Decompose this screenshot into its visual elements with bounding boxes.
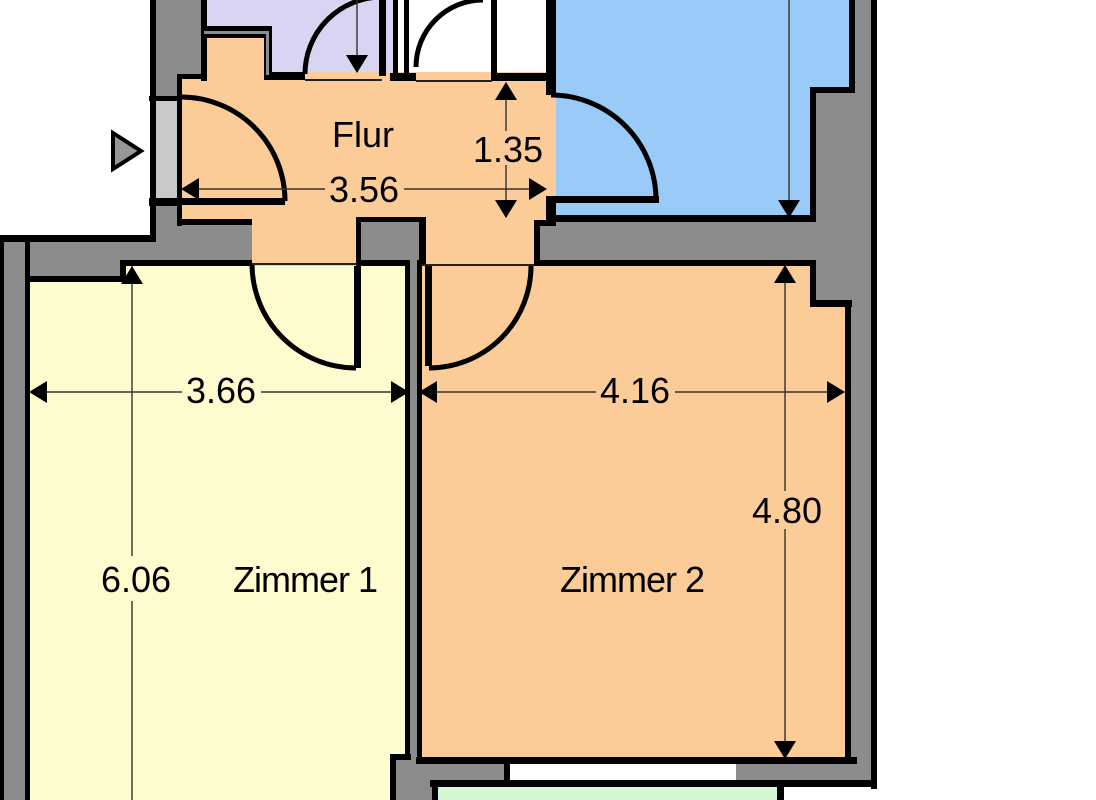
svg-text:3.66: 3.66	[186, 370, 256, 411]
svg-text:6.06: 6.06	[101, 559, 171, 600]
svg-text:1.35: 1.35	[473, 129, 543, 170]
svg-text:3.56: 3.56	[329, 169, 399, 210]
svg-text:Zimmer 2: Zimmer 2	[560, 559, 704, 600]
svg-text:4.80: 4.80	[752, 490, 822, 531]
svg-text:4.16: 4.16	[600, 370, 670, 411]
svg-text:Zimmer 1: Zimmer 1	[233, 559, 377, 600]
svg-text:Flur: Flur	[332, 114, 394, 155]
